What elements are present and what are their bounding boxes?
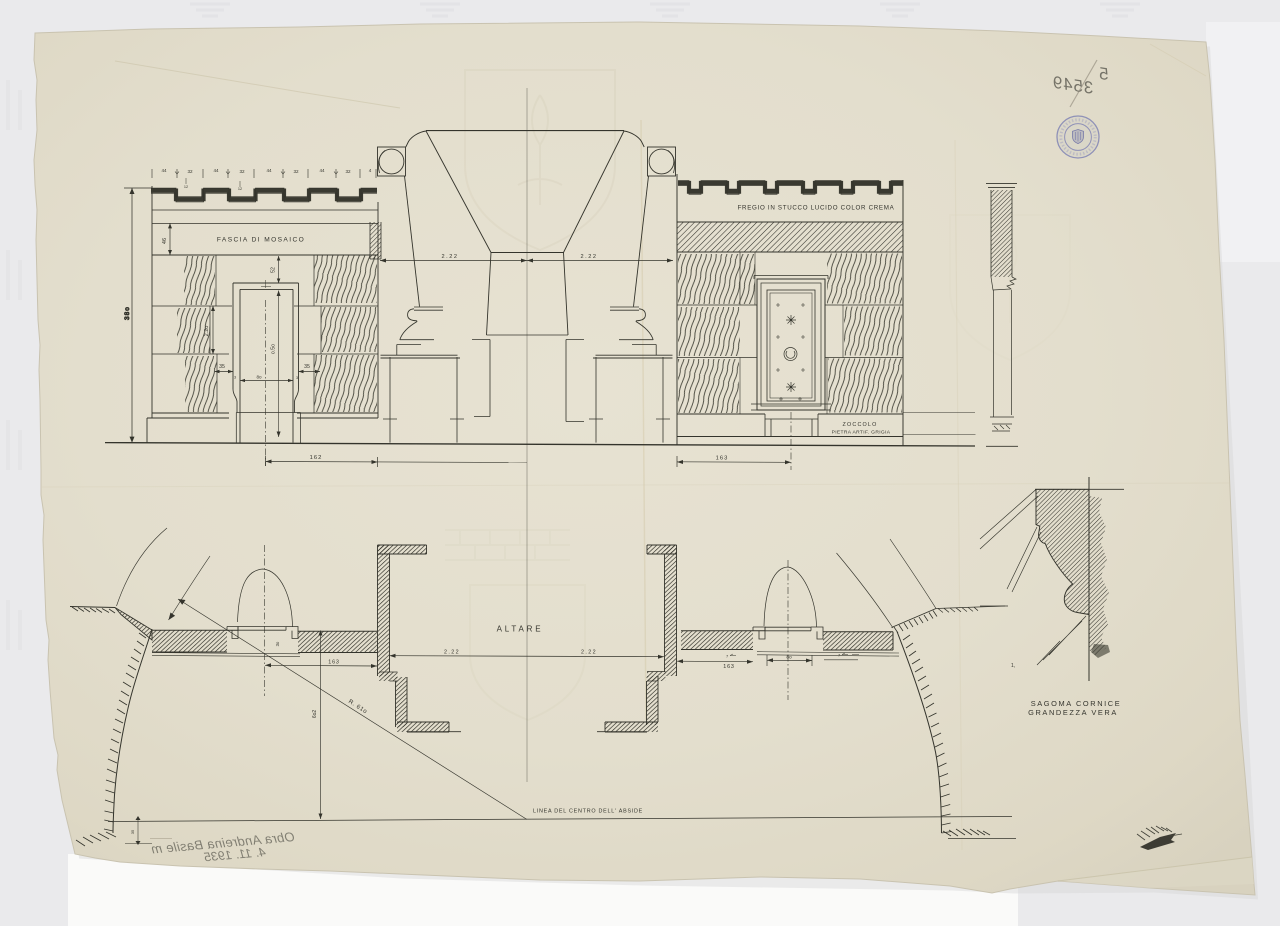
svg-text:GRANDEZZA VERA: GRANDEZZA VERA: [1028, 708, 1118, 717]
svg-text:ALTARE: ALTARE: [497, 625, 544, 634]
svg-text:4: 4: [369, 168, 372, 173]
svg-text:163: 163: [723, 664, 734, 670]
svg-text:1,: 1,: [1011, 663, 1015, 669]
svg-text:2.22: 2.22: [444, 650, 460, 656]
svg-text:12: 12: [238, 187, 242, 191]
svg-text:FREGIO IN STUCCO LUCIDO COLOR: FREGIO IN STUCCO LUCIDO COLOR CREMA: [738, 205, 895, 212]
svg-text:46: 46: [162, 238, 168, 244]
svg-text:163: 163: [716, 456, 729, 462]
svg-text:FASCIA DI MOSAICO: FASCIA DI MOSAICO: [217, 237, 305, 244]
svg-text:LINEA DEL CENTRO DELL' ABSIDE: LINEA DEL CENTRO DELL' ABSIDE: [533, 809, 643, 815]
svg-text:2.22: 2.22: [581, 650, 597, 656]
svg-text:SAGOMA CORNICE: SAGOMA CORNICE: [1031, 699, 1122, 708]
svg-text:PIETRA ARTIF. GRIGIA: PIETRA ARTIF. GRIGIA: [832, 430, 891, 436]
svg-text:8o: 8o: [256, 375, 262, 380]
svg-text:52: 52: [271, 267, 277, 273]
svg-text:12: 12: [184, 185, 188, 189]
svg-text:35: 35: [219, 364, 225, 370]
svg-text:2.22: 2.22: [442, 254, 459, 260]
svg-text:35: 35: [130, 829, 135, 834]
svg-text:32: 32: [239, 169, 245, 174]
svg-text:3o: 3o: [275, 641, 280, 646]
svg-text:44: 44: [319, 168, 325, 173]
svg-text:6o2: 6o2: [312, 710, 318, 719]
svg-text:44: 44: [161, 168, 167, 173]
svg-text:44: 44: [266, 168, 272, 173]
svg-text:32: 32: [345, 169, 351, 174]
svg-text:32: 32: [293, 169, 299, 174]
svg-text:38o: 38o: [124, 306, 131, 320]
svg-text:o.5o: o.5o: [271, 344, 277, 354]
svg-text:3: 3: [234, 376, 236, 380]
svg-text:ZOCCOLO: ZOCCOLO: [842, 422, 877, 428]
svg-text:3: 3: [296, 376, 298, 380]
svg-text:35: 35: [304, 364, 310, 370]
svg-text:32: 32: [187, 169, 193, 174]
svg-text:163: 163: [328, 660, 339, 666]
svg-text:162: 162: [310, 455, 323, 461]
svg-text:44: 44: [213, 168, 219, 173]
svg-text:2.22: 2.22: [581, 254, 598, 260]
svg-text:8o: 8o: [786, 655, 792, 661]
